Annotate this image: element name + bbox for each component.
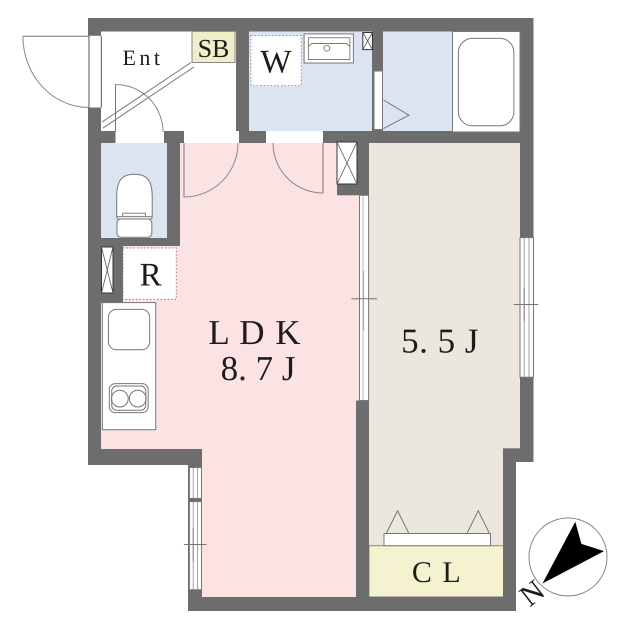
svg-text:5. 5 J: 5. 5 J xyxy=(401,321,479,360)
svg-text:L D K: L D K xyxy=(208,313,301,352)
svg-text:W: W xyxy=(260,44,292,80)
svg-text:Ent: Ent xyxy=(122,45,163,70)
svg-text:R: R xyxy=(140,258,162,294)
svg-text:SB: SB xyxy=(198,34,230,63)
svg-text:C L: C L xyxy=(412,556,462,589)
svg-text:8. 7 J: 8. 7 J xyxy=(221,349,296,388)
